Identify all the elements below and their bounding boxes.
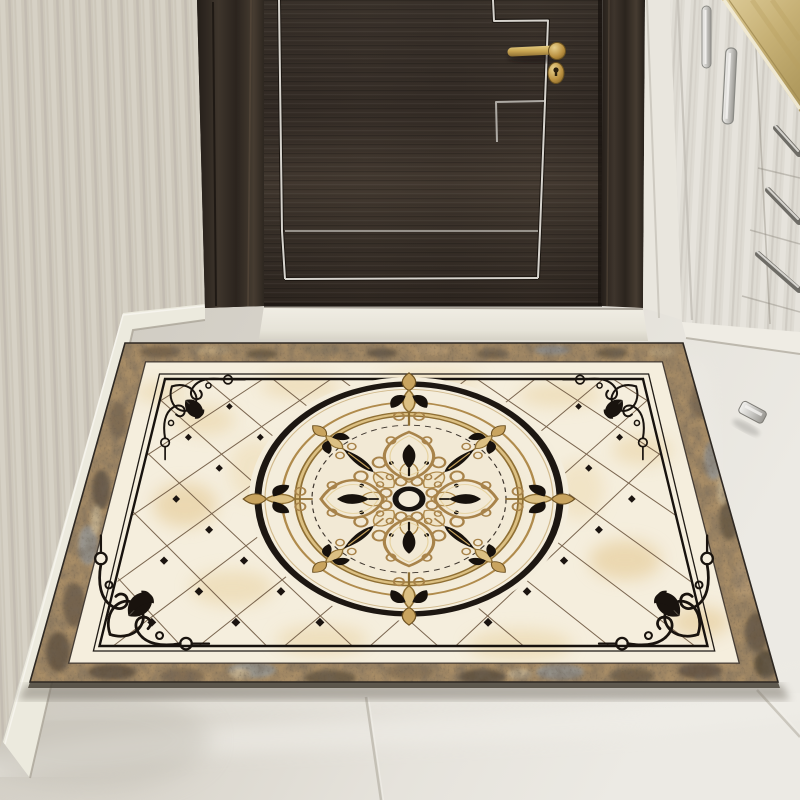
entryway-photo xyxy=(0,0,800,800)
scene xyxy=(0,0,800,800)
cabinet-handle-vertical-1 xyxy=(702,6,711,68)
medallion-center-ring xyxy=(396,489,423,510)
handle-rosette xyxy=(549,43,566,60)
floor-rug xyxy=(0,335,800,700)
door-threshold xyxy=(259,306,648,341)
entry-door-assembly xyxy=(197,0,648,341)
